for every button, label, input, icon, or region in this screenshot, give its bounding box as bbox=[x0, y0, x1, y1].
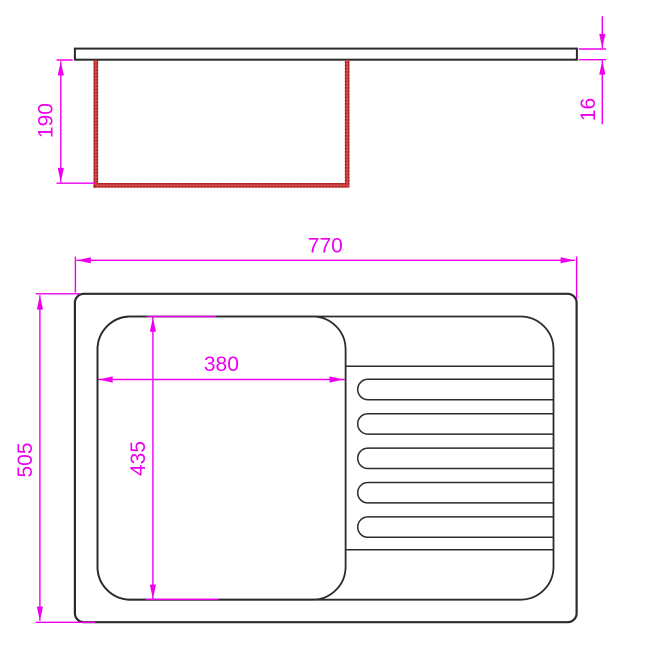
svg-text:505: 505 bbox=[14, 442, 37, 477]
svg-text:770: 770 bbox=[308, 234, 343, 257]
svg-text:380: 380 bbox=[204, 353, 239, 376]
svg-text:190: 190 bbox=[35, 103, 58, 138]
svg-text:435: 435 bbox=[127, 441, 150, 476]
svg-text:16: 16 bbox=[577, 98, 600, 121]
